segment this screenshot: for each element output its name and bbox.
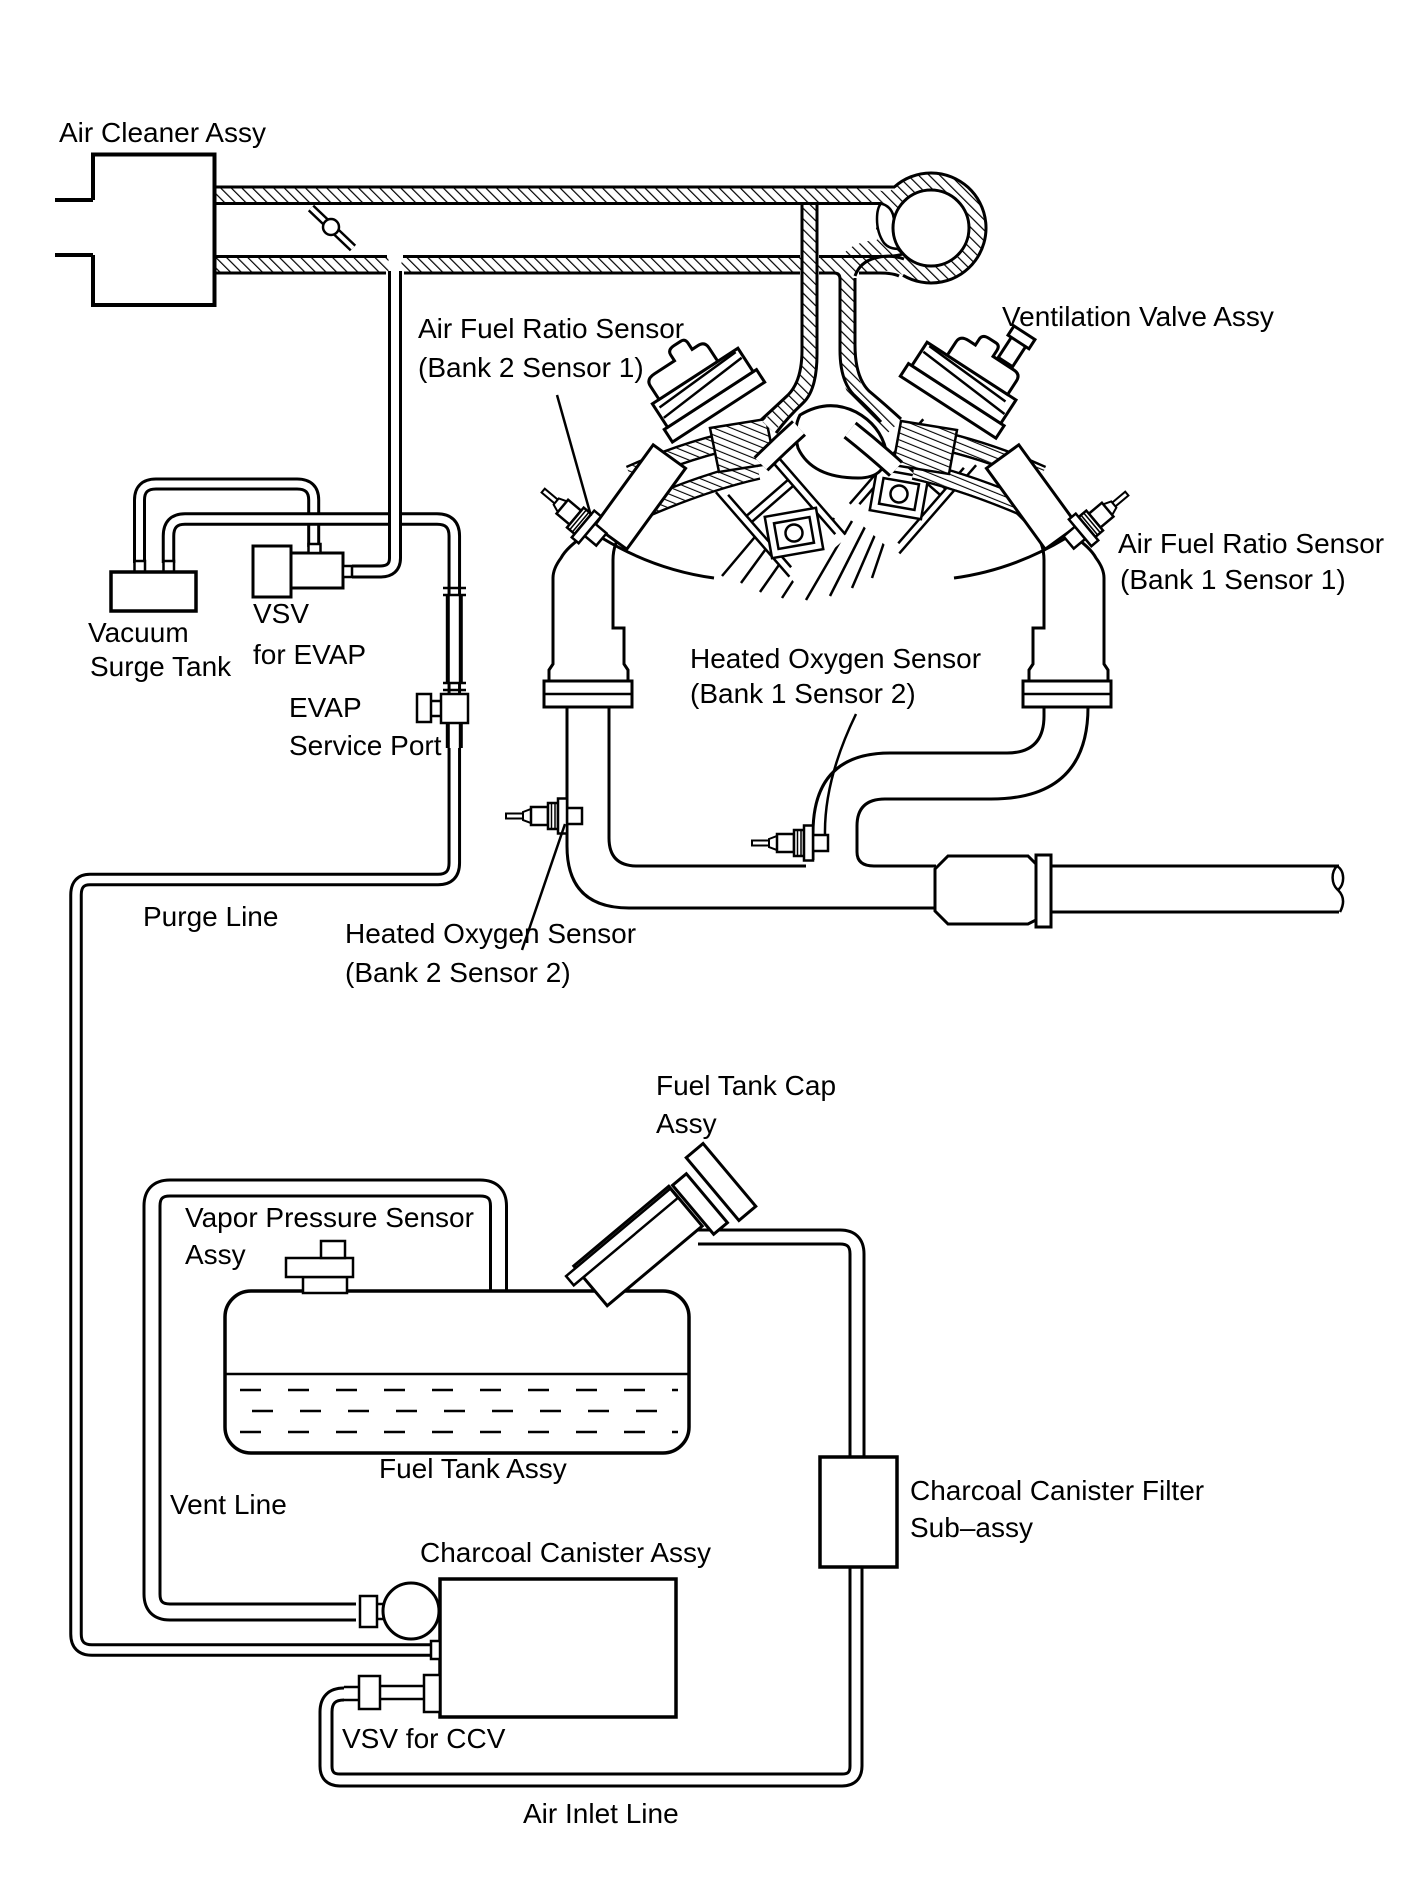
svg-text:Charcoal Canister Filter: Charcoal Canister Filter — [910, 1475, 1204, 1506]
svg-text:Fuel Tank Assy: Fuel Tank Assy — [379, 1453, 567, 1484]
svg-text:Air Inlet Line: Air Inlet Line — [523, 1798, 679, 1829]
svg-text:(Bank 1 Sensor 1): (Bank 1 Sensor 1) — [1120, 564, 1346, 595]
svg-text:Fuel Tank Cap: Fuel Tank Cap — [656, 1070, 836, 1101]
svg-text:Vent Line: Vent Line — [170, 1489, 287, 1520]
svg-text:EVAP: EVAP — [289, 692, 362, 723]
svg-text:Ventilation Valve Assy: Ventilation Valve Assy — [1002, 301, 1274, 332]
svg-text:VSV: VSV — [253, 598, 309, 629]
svg-text:for EVAP: for EVAP — [253, 639, 366, 670]
svg-text:Air Fuel Ratio Sensor: Air Fuel Ratio Sensor — [418, 313, 684, 344]
svg-text:Vacuum: Vacuum — [88, 617, 189, 648]
svg-text:Heated Oxygen Sensor: Heated Oxygen Sensor — [690, 643, 981, 674]
svg-text:Air Fuel Ratio Sensor: Air Fuel Ratio Sensor — [1118, 528, 1384, 559]
svg-text:Purge Line: Purge Line — [143, 901, 278, 932]
svg-text:Air Cleaner Assy: Air Cleaner Assy — [59, 117, 266, 148]
svg-text:Sub–assy: Sub–assy — [910, 1512, 1033, 1543]
svg-text:Service Port: Service Port — [289, 730, 442, 761]
svg-text:Vapor Pressure Sensor: Vapor Pressure Sensor — [185, 1202, 474, 1233]
svg-text:Heated Oxygen Sensor: Heated Oxygen Sensor — [345, 918, 636, 949]
svg-text:(Bank 2 Sensor 2): (Bank 2 Sensor 2) — [345, 957, 571, 988]
svg-text:Charcoal Canister Assy: Charcoal Canister Assy — [420, 1537, 711, 1568]
svg-text:Assy: Assy — [656, 1108, 717, 1139]
svg-text:VSV for CCV: VSV for CCV — [342, 1723, 506, 1754]
svg-text:(Bank 2 Sensor 1): (Bank 2 Sensor 1) — [418, 352, 644, 383]
svg-text:(Bank 1 Sensor 2): (Bank 1 Sensor 2) — [690, 678, 916, 709]
svg-text:Surge Tank: Surge Tank — [90, 651, 232, 682]
svg-text:Assy: Assy — [185, 1239, 246, 1270]
